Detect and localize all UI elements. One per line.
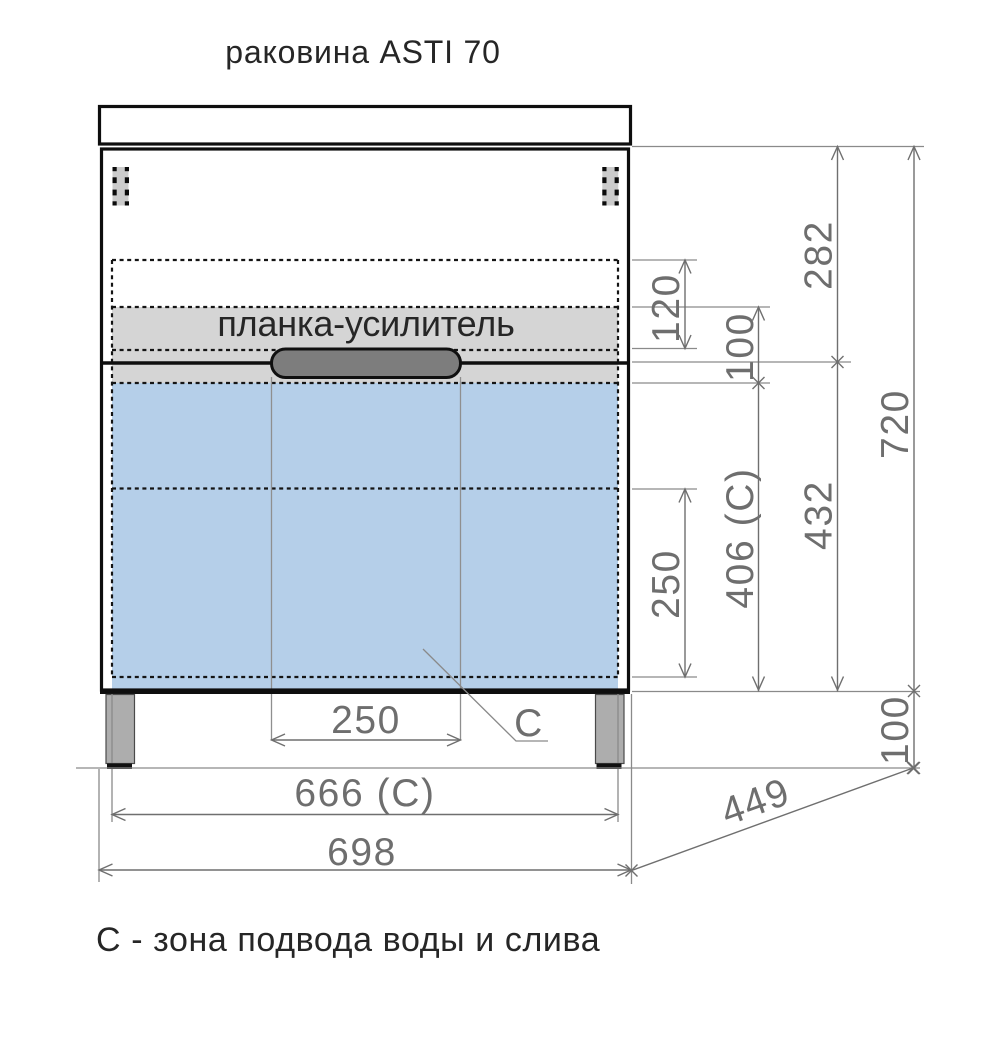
svg-text:698: 698 xyxy=(327,831,397,874)
svg-text:250: 250 xyxy=(645,549,688,619)
svg-text:720: 720 xyxy=(874,389,917,459)
svg-text:планка-усилитель: планка-усилитель xyxy=(217,303,514,344)
svg-text:282: 282 xyxy=(798,220,841,290)
svg-text:раковина ASTI 70: раковина ASTI 70 xyxy=(225,34,500,70)
svg-text:120: 120 xyxy=(645,273,688,343)
svg-text:100: 100 xyxy=(719,312,762,382)
svg-text:432: 432 xyxy=(798,480,841,550)
svg-text:666 (C): 666 (C) xyxy=(294,772,435,815)
svg-text:250: 250 xyxy=(331,699,401,742)
svg-text:406 (C): 406 (C) xyxy=(719,467,762,608)
svg-text:100: 100 xyxy=(874,695,917,765)
svg-text:С - зона подвода воды и слива: С - зона подвода воды и слива xyxy=(96,921,600,959)
svg-text:C: C xyxy=(514,702,544,745)
